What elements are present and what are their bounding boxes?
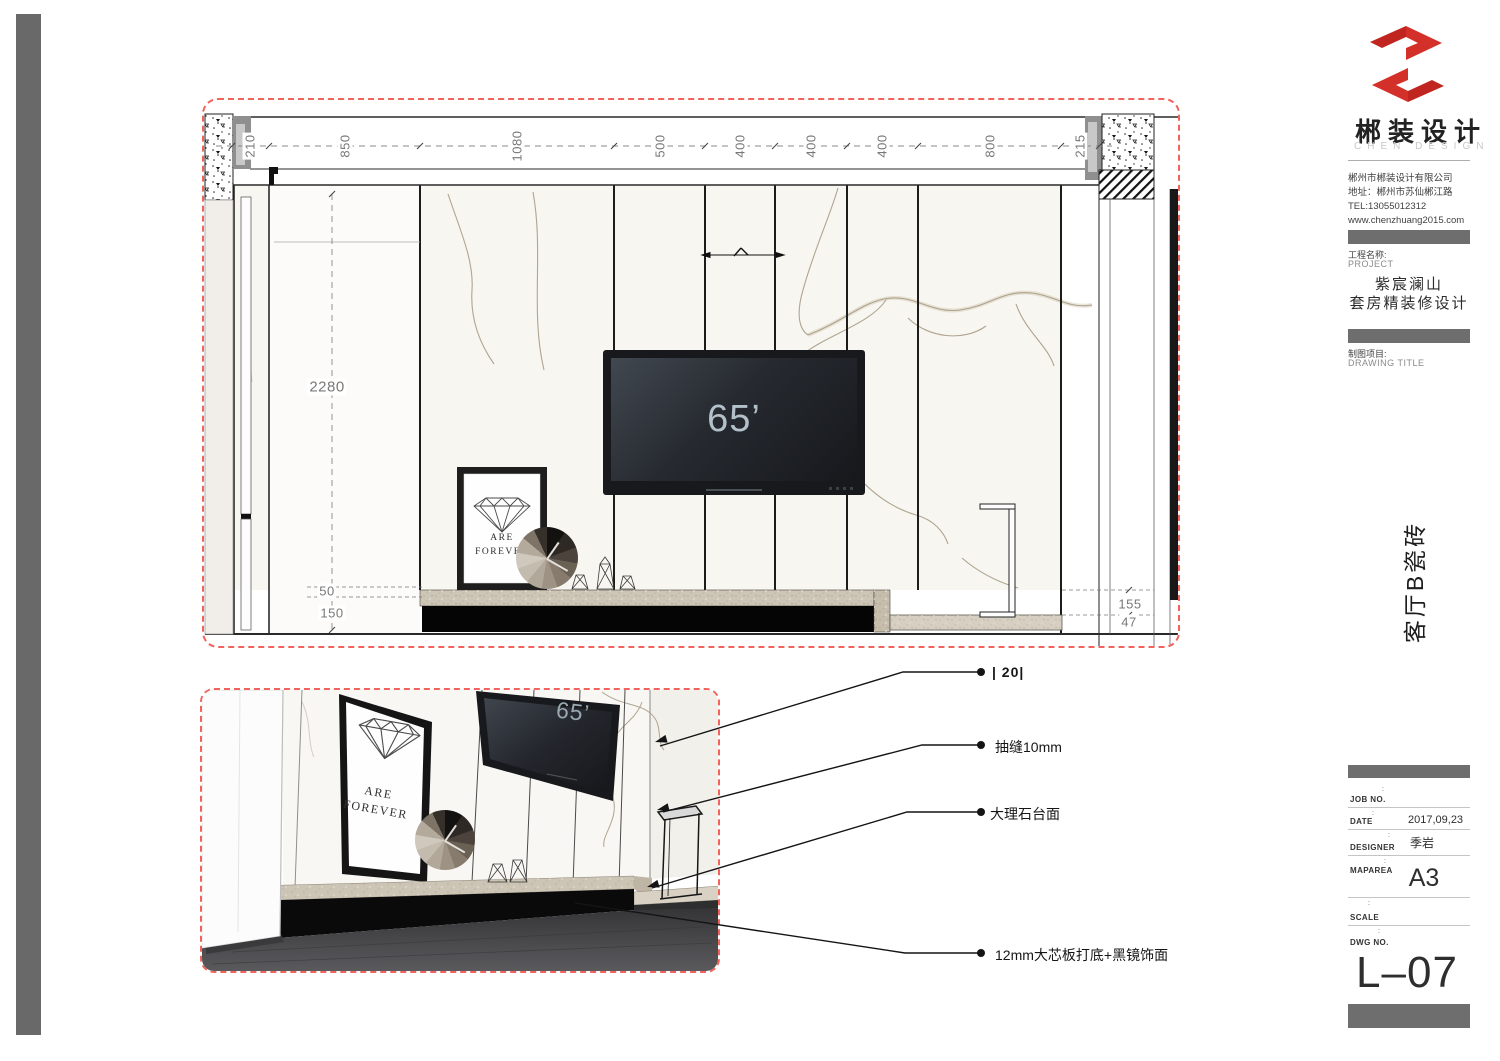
scale-label: SCALE bbox=[1350, 913, 1379, 922]
drawing-sheet: ARE FOREVER bbox=[0, 0, 1500, 1061]
row-tick: : bbox=[1382, 786, 1384, 793]
counter-black-base bbox=[422, 606, 874, 632]
elevation-drawing: ARE FOREVER bbox=[202, 98, 1180, 648]
company-address: 地址：郴州市苏仙郴江路 bbox=[1348, 186, 1488, 200]
company-website: www.chenzhuang2015.com bbox=[1348, 214, 1488, 228]
tv-logo-bar bbox=[706, 489, 762, 491]
dim-400a: 400 bbox=[733, 132, 748, 159]
annotation-base-finish: 12mm大芯板打底+黑镜饰面 bbox=[995, 945, 1168, 965]
tv-screen: 65’ bbox=[611, 358, 857, 481]
dim-215: 215 bbox=[1073, 132, 1088, 159]
door-edge-bar bbox=[1170, 189, 1180, 600]
drawing-title-label-en: DRAWING TITLE bbox=[1348, 358, 1488, 368]
side-wall bbox=[650, 690, 720, 879]
dim-150: 150 bbox=[318, 606, 345, 621]
dwgno-label: DWG NO. bbox=[1350, 938, 1389, 947]
titleblock-row-maparea: : MAPAREA A3 bbox=[1348, 856, 1470, 898]
titleblock-row-dwgno: : DWG NO. bbox=[1348, 926, 1470, 950]
tv-indicator-dots bbox=[829, 487, 855, 490]
designer-value: 季岩 bbox=[1410, 834, 1434, 851]
section-bar-project bbox=[1348, 230, 1470, 244]
perspective-clock-disc bbox=[415, 810, 475, 870]
date-value: 2017,09,23 bbox=[1408, 814, 1463, 826]
annotation-joint-20: | 20| bbox=[992, 664, 1024, 680]
annotation-marble-counter: 大理石台面 bbox=[990, 804, 1060, 824]
company-name: 郴州市郴装设计有限公司 bbox=[1348, 172, 1488, 186]
dim-800: 800 bbox=[983, 132, 998, 159]
titleblock-row-scale: : SCALE bbox=[1348, 898, 1470, 926]
brand-name-en: CHEN DESIGN bbox=[1348, 141, 1470, 152]
dim-1080: 1080 bbox=[510, 129, 525, 164]
row-tick: : bbox=[1388, 832, 1390, 839]
project-name-line2: 套房精装修设计 bbox=[1348, 292, 1470, 313]
tv-65-inch: 65’ bbox=[603, 350, 865, 495]
project-name-line1: 紫宸澜山 bbox=[1348, 273, 1470, 294]
section-bar-bottom bbox=[1348, 1004, 1470, 1028]
titleblock-row-designer: : DESIGNER 季岩 bbox=[1348, 830, 1470, 856]
dim-height-2280: 2280 bbox=[307, 379, 346, 396]
clock-disc bbox=[516, 527, 578, 589]
perspective-drawing: ARE FOREVER bbox=[200, 688, 720, 973]
tv-size-label: 65’ bbox=[707, 398, 761, 441]
dim-47: 47 bbox=[1119, 615, 1138, 630]
dim-850: 850 bbox=[338, 132, 353, 159]
dim-500: 500 bbox=[653, 132, 668, 159]
row-tick: : bbox=[1372, 810, 1374, 817]
annotation-groove-10mm: 抽缝10mm bbox=[995, 737, 1062, 757]
sidebar-divider bbox=[1348, 160, 1470, 161]
project-label-en: PROJECT bbox=[1348, 259, 1488, 269]
dim-400c: 400 bbox=[875, 132, 890, 159]
white-column bbox=[202, 690, 283, 948]
row-tick: : bbox=[1378, 928, 1380, 935]
jobno-label: JOB NO. bbox=[1350, 795, 1386, 804]
dim-50: 50 bbox=[317, 584, 336, 599]
designer-label: DESIGNER bbox=[1350, 843, 1395, 852]
perspective-tv-size-label: 65’ bbox=[555, 697, 592, 728]
company-logo-icon bbox=[1352, 24, 1462, 104]
row-tick: : bbox=[1368, 900, 1370, 907]
company-info: 郴州市郴装设计有限公司 地址：郴州市苏仙郴江路 TEL:13055012312 … bbox=[1348, 172, 1488, 228]
section-bar-titleblock bbox=[1348, 765, 1470, 778]
company-tel: TEL:13055012312 bbox=[1348, 200, 1488, 214]
left-margin-bar bbox=[16, 14, 41, 1035]
titleblock-row-jobno: : JOB NO. bbox=[1348, 784, 1470, 808]
dim-400b: 400 bbox=[804, 132, 819, 159]
drawing-title-vertical: 客厅B瓷砖 bbox=[1396, 521, 1430, 643]
dim-155: 155 bbox=[1116, 597, 1143, 612]
date-label: DATE bbox=[1350, 817, 1373, 826]
dim-210: 210 bbox=[243, 132, 258, 159]
titleblock-row-date: : DATE 2017,09,23 bbox=[1348, 808, 1470, 830]
counter bbox=[420, 590, 1062, 632]
maparea-value: A3 bbox=[1348, 864, 1470, 893]
drawing-number: L–07 bbox=[1342, 948, 1472, 998]
section-bar-drawing-title bbox=[1348, 329, 1470, 343]
artwork-text-line1: ARE bbox=[490, 533, 514, 543]
